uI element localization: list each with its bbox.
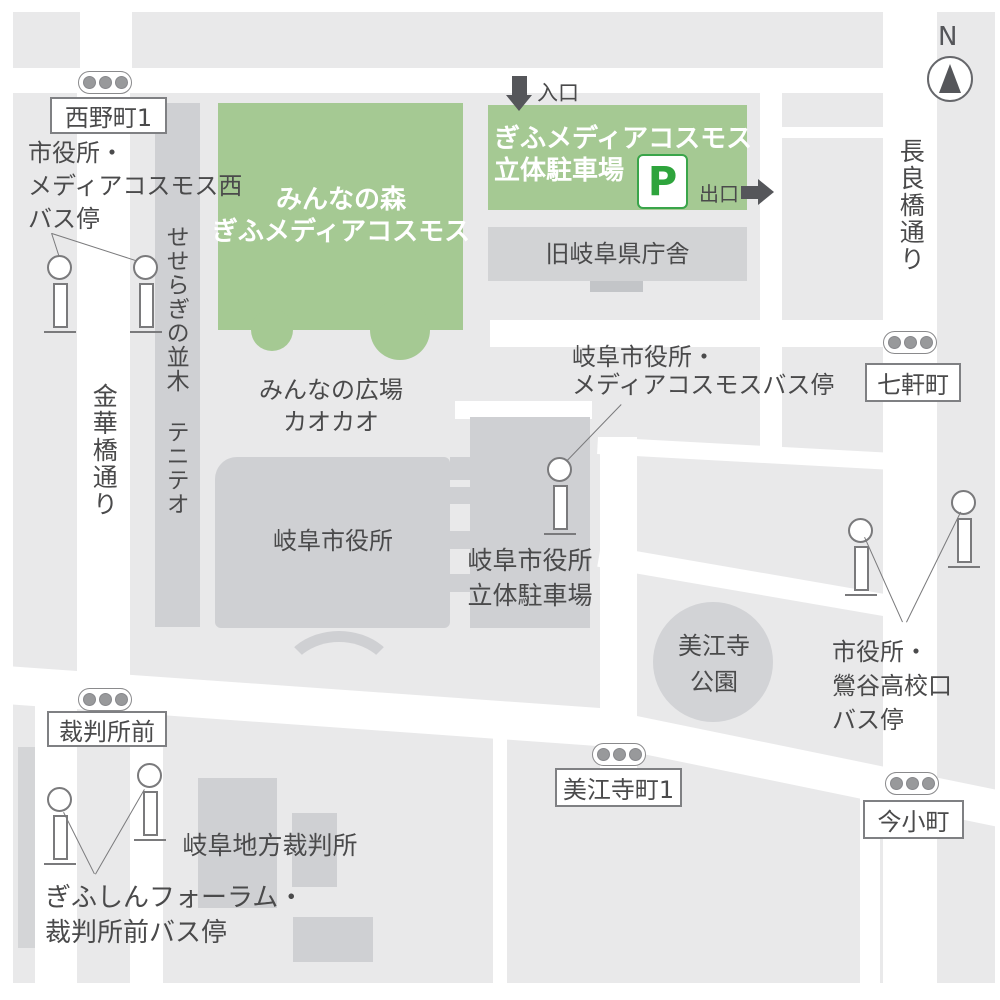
traffic-light-saibanshomae xyxy=(78,688,132,711)
seseragi-teniteo-label: せせらぎの並木 テニテオ xyxy=(163,225,187,516)
city-hall-parking-line1: 岐阜市役所 xyxy=(460,548,600,574)
west-edge-building xyxy=(18,747,35,948)
bus-stop-forum-line2: 裁判所前バス停 xyxy=(45,920,227,947)
city-hall-connector-2 xyxy=(450,487,470,504)
media-cosmos-bump-1 xyxy=(251,309,293,351)
intersection-nishinomachi1: 西野町1 xyxy=(50,97,167,134)
compass-needle xyxy=(939,64,961,93)
traffic-light-shichikencho xyxy=(883,331,937,354)
compass-n-label: N xyxy=(938,24,957,51)
city-hall-parking-line2: 立体駐車場 xyxy=(460,583,600,609)
bus-stop-west-line1: 市役所・ xyxy=(28,141,124,166)
minna-no-mori-line1: みんなの森 xyxy=(218,187,464,214)
compass-icon xyxy=(927,56,973,102)
traffic-light-miejicho xyxy=(592,743,646,766)
bus-stop-west-line3: バス停 xyxy=(28,207,100,232)
road-east-jog xyxy=(782,127,883,138)
exit-arrow-icon xyxy=(758,179,774,205)
bus-stop-west-line2: メディアコスモス西 xyxy=(28,174,242,199)
bus-stop-media-line2: メディアコスモスバス停 xyxy=(572,373,834,398)
mieji-park-line2: 公園 xyxy=(654,670,774,695)
intersection-shichikencho: 七軒町 xyxy=(865,363,961,402)
minna-no-hiroba-line1: みんなの広場 xyxy=(241,378,421,403)
mieji-park-line1: 美江寺 xyxy=(654,634,774,659)
media-parking-line1: ぎふメディアコスモス xyxy=(494,126,752,153)
exit-label: 出口 xyxy=(699,184,739,205)
road-top-horizontal xyxy=(10,68,883,93)
bus-stop-icon-uguisudani-1 xyxy=(845,518,877,600)
traffic-light-imakomachi xyxy=(885,772,939,795)
exit-arrow-shaft xyxy=(741,186,759,199)
city-hall-label: 岐阜市役所 xyxy=(233,529,433,554)
parking-p-letter: P xyxy=(648,159,677,205)
minna-no-hiroba-line2: カオカオ xyxy=(241,410,421,435)
bus-stop-icon-west-2 xyxy=(130,255,162,337)
bus-stop-uguisudani-line3: バス停 xyxy=(832,708,904,733)
bus-stop-icon-west-1 xyxy=(44,255,76,337)
gifu-media-cosmos-access-map: みんなの森 ぎふメディアコスモス ぎふメディアコスモス 立体駐車場 P 入口 出… xyxy=(0,0,1000,1000)
parking-p-icon: P xyxy=(637,154,688,209)
traffic-light-nishinomachi xyxy=(78,71,132,94)
road-parking-east xyxy=(760,93,782,460)
court-building-3 xyxy=(293,917,373,962)
old-prefectural-office-annex xyxy=(590,281,643,292)
kinkabashi-street-label: 金華橋通り xyxy=(90,383,116,518)
old-prefectural-office-label: 旧岐阜県庁舎 xyxy=(495,242,740,267)
road-top-left-stub xyxy=(80,12,132,70)
intersection-imakomachi: 今小町 xyxy=(863,800,964,839)
city-hall-arch xyxy=(278,631,400,731)
road-bottom-mid-1 xyxy=(493,738,507,983)
bus-stop-uguisudani-line1: 市役所・ xyxy=(832,640,928,665)
media-parking-line2: 立体駐車場 xyxy=(494,158,624,185)
mieji-park-circle xyxy=(653,602,773,722)
bus-stop-icon-uguisudani-2 xyxy=(948,490,980,572)
bus-stop-uguisudani-line2: 鶯谷高校口 xyxy=(832,674,952,699)
intersection-saibanshomae: 裁判所前 xyxy=(47,711,167,747)
nagarabashi-street-label: 長良橋通り xyxy=(897,138,923,273)
bus-stop-icon-forum-2 xyxy=(134,763,166,845)
bus-stop-forum-line1: ぎふしんフォーラム・ xyxy=(45,885,304,912)
city-hall-connector-1 xyxy=(450,457,470,480)
bus-stop-icon-media xyxy=(544,457,576,539)
district-court-label: 岐阜地方裁判所 xyxy=(170,833,370,859)
media-cosmos-bump-2 xyxy=(370,300,430,360)
entrance-arrow-icon xyxy=(506,95,532,111)
bus-stop-media-line1: 岐阜市役所・ xyxy=(572,345,716,370)
minna-no-mori-line2: ぎふメディアコスモス xyxy=(210,219,472,246)
entrance-label: 入口 xyxy=(537,82,579,104)
intersection-miejicho1: 美江寺町1 xyxy=(555,768,682,807)
entrance-arrow-shaft xyxy=(512,76,527,96)
